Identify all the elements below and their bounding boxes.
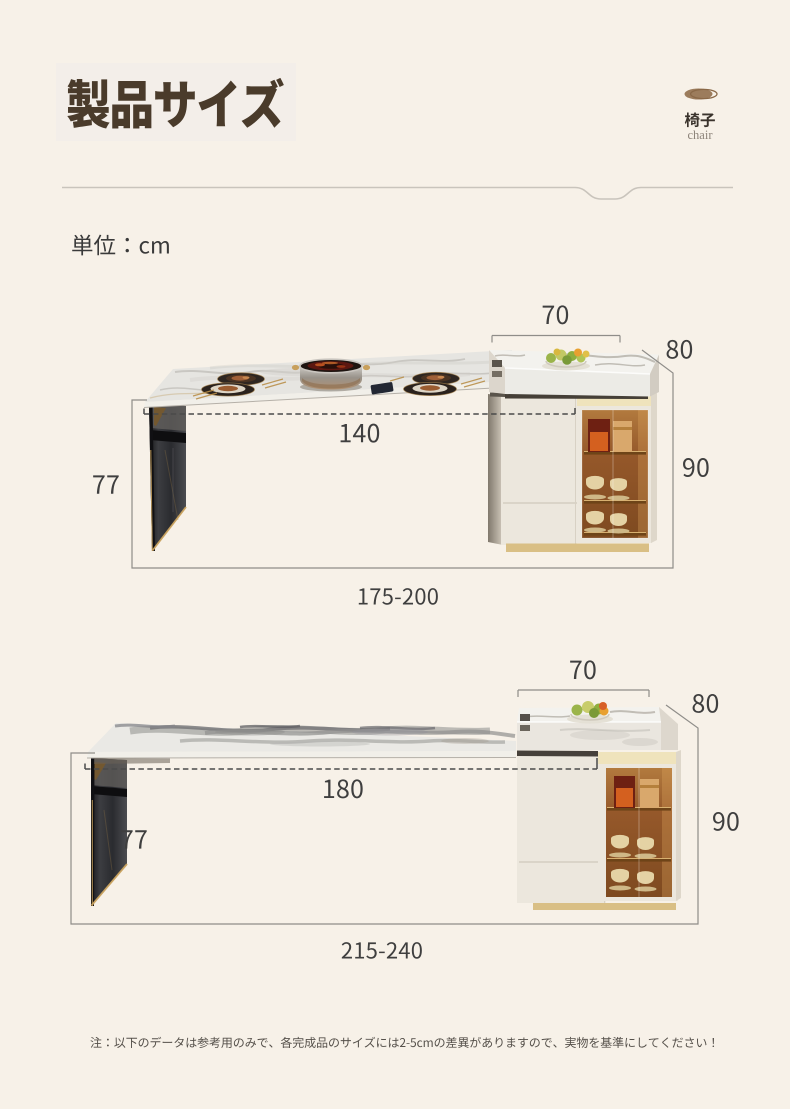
- svg-text:chair: chair: [688, 128, 714, 142]
